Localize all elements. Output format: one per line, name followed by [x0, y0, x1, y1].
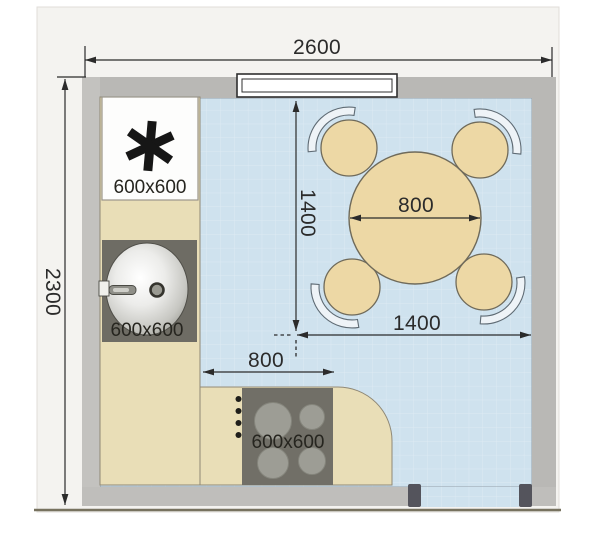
left-wall	[82, 77, 100, 506]
door-jamb-left	[408, 484, 421, 507]
floor-plan-screenshot: 600x600 600x600 600x600	[0, 0, 600, 550]
room-depth-value: 2300	[41, 268, 64, 316]
dining-width-value: 1400	[393, 312, 441, 335]
sink-size-label: 600x600	[111, 320, 184, 341]
chair-top-left	[321, 120, 377, 176]
burner-top-right	[300, 405, 325, 430]
cooktop-size-label: 600x600	[252, 432, 325, 453]
doorway-floor	[421, 487, 519, 507]
right-wall	[532, 77, 556, 506]
dining-depth-value: 1400	[296, 189, 319, 237]
refrigerator: 600x600	[102, 97, 198, 200]
sink-drain	[151, 284, 164, 297]
passage-width-value: 800	[248, 349, 284, 372]
window-inner-frame	[242, 79, 392, 92]
room-width-value: 2600	[293, 36, 341, 59]
sink-unit: 600x600	[99, 240, 197, 342]
bottom-wall-left-segment	[82, 487, 421, 506]
window	[237, 74, 397, 97]
door-jamb-right	[519, 484, 532, 507]
floor-plan-svg: 600x600 600x600 600x600	[0, 0, 600, 550]
cooktop: 600x600	[236, 388, 334, 485]
refrigerator-size-label: 600x600	[114, 177, 187, 198]
table-diameter-value: 800	[398, 194, 434, 217]
